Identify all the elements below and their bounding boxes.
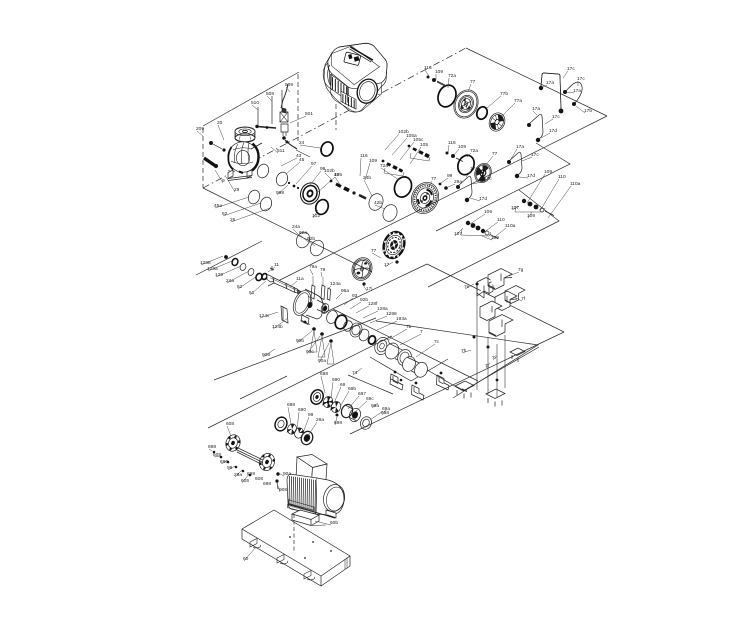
svg-text:62a: 62a	[299, 230, 307, 236]
svg-text:97: 97	[311, 161, 317, 167]
svg-text:77: 77	[371, 248, 377, 254]
svg-text:510: 510	[251, 100, 259, 106]
svg-text:509: 509	[285, 82, 293, 88]
svg-text:17d: 17d	[479, 196, 487, 202]
svg-text:72a: 72a	[448, 73, 456, 79]
svg-text:17a: 17a	[546, 80, 554, 86]
svg-text:7b: 7b	[406, 324, 412, 330]
svg-text:17c: 17c	[484, 176, 492, 182]
svg-text:42b: 42b	[374, 200, 382, 206]
svg-text:29a: 29a	[454, 179, 462, 185]
svg-text:17c: 17c	[567, 66, 575, 72]
svg-text:7: 7	[420, 329, 423, 335]
svg-text:7g: 7g	[518, 267, 524, 273]
svg-text:72a: 72a	[470, 148, 478, 154]
svg-text:11: 11	[274, 262, 279, 268]
svg-text:99: 99	[227, 465, 233, 471]
svg-text:698: 698	[263, 481, 271, 487]
svg-text:17c: 17c	[552, 114, 560, 120]
svg-text:11a: 11a	[296, 276, 304, 282]
svg-text:17b: 17b	[584, 108, 592, 114]
svg-text:90c: 90c	[306, 349, 314, 355]
svg-text:116: 116	[424, 65, 432, 71]
svg-text:109: 109	[369, 158, 377, 164]
svg-text:77b: 77b	[500, 91, 508, 97]
svg-text:109: 109	[435, 69, 443, 75]
svg-text:90a: 90a	[283, 471, 291, 477]
svg-text:908: 908	[262, 352, 270, 358]
svg-text:45: 45	[299, 157, 305, 163]
svg-text:24a: 24a	[226, 278, 234, 284]
svg-text:62: 62	[222, 211, 228, 217]
svg-text:109: 109	[544, 169, 552, 175]
svg-text:605: 605	[241, 478, 249, 484]
svg-text:109: 109	[527, 213, 535, 219]
svg-text:998: 998	[276, 190, 284, 196]
svg-text:24b: 24b	[363, 175, 371, 181]
svg-text:60b: 60b	[330, 520, 338, 526]
svg-text:17: 17	[384, 262, 390, 268]
svg-text:501: 501	[305, 111, 313, 117]
svg-text:90a: 90a	[318, 358, 326, 364]
svg-text:109: 109	[458, 144, 466, 150]
svg-text:110: 110	[497, 217, 505, 223]
svg-text:79a: 79a	[309, 264, 317, 270]
svg-text:110a: 110a	[570, 181, 581, 187]
svg-text:29: 29	[234, 187, 240, 193]
svg-text:17j: 17j	[366, 286, 372, 292]
svg-text:7c: 7c	[434, 339, 440, 345]
svg-text:93: 93	[352, 293, 358, 299]
svg-text:17c: 17c	[577, 76, 585, 82]
svg-text:124c: 124c	[259, 313, 270, 319]
svg-text:74: 74	[352, 370, 358, 376]
svg-text:62b: 62b	[307, 236, 315, 242]
svg-text:116: 116	[448, 140, 456, 146]
svg-text:107: 107	[511, 205, 519, 211]
svg-text:129a: 129a	[207, 266, 218, 272]
svg-text:69: 69	[340, 382, 346, 388]
svg-text:107: 107	[454, 231, 462, 237]
svg-text:99: 99	[447, 173, 453, 179]
svg-text:79: 79	[320, 267, 326, 273]
svg-text:26: 26	[230, 217, 236, 223]
svg-text:690: 690	[220, 459, 228, 465]
svg-text:608: 608	[213, 452, 221, 458]
svg-text:124b: 124b	[272, 324, 283, 330]
svg-text:60: 60	[243, 556, 249, 562]
svg-text:99: 99	[308, 412, 314, 418]
svg-text:24: 24	[299, 140, 305, 146]
svg-text:72a: 72a	[380, 163, 388, 169]
svg-text:124a: 124a	[330, 281, 341, 287]
svg-text:51: 51	[249, 290, 255, 296]
svg-text:17c: 17c	[531, 152, 539, 158]
svg-text:690: 690	[298, 407, 306, 413]
svg-text:698: 698	[208, 444, 216, 450]
svg-text:29a: 29a	[234, 472, 242, 478]
svg-text:96a: 96a	[341, 288, 349, 294]
svg-text:508: 508	[266, 91, 274, 97]
svg-text:7h: 7h	[461, 348, 467, 354]
svg-text:7i: 7i	[492, 355, 496, 361]
svg-text:69b: 69b	[348, 386, 356, 392]
svg-text:17a: 17a	[532, 106, 540, 112]
svg-text:77: 77	[431, 176, 437, 182]
svg-text:698: 698	[287, 402, 295, 408]
svg-text:9: 9	[222, 178, 225, 184]
svg-text:52: 52	[237, 284, 243, 290]
svg-text:105: 105	[334, 172, 342, 178]
svg-text:17a: 17a	[470, 166, 478, 172]
svg-text:20: 20	[217, 120, 223, 126]
svg-text:77a: 77a	[514, 98, 522, 104]
svg-text:7j: 7j	[485, 363, 489, 369]
svg-text:698: 698	[320, 371, 328, 377]
svg-text:17a: 17a	[516, 144, 524, 150]
svg-text:77: 77	[492, 151, 498, 157]
svg-text:102: 102	[312, 213, 320, 219]
svg-text:109: 109	[491, 235, 499, 241]
svg-text:45a: 45a	[214, 203, 222, 209]
svg-text:99a: 99a	[371, 403, 379, 409]
svg-text:511: 511	[277, 148, 285, 154]
svg-text:17d: 17d	[527, 173, 535, 179]
svg-text:7e: 7e	[464, 284, 470, 290]
svg-text:908: 908	[279, 487, 287, 493]
svg-text:608: 608	[226, 421, 234, 427]
svg-text:110a: 110a	[505, 223, 516, 229]
svg-text:116: 116	[360, 153, 368, 159]
svg-text:69c: 69c	[366, 396, 374, 402]
svg-text:24a: 24a	[292, 224, 300, 230]
svg-text:109: 109	[484, 209, 492, 215]
svg-text:209: 209	[196, 126, 204, 132]
svg-text:29a: 29a	[316, 417, 324, 423]
svg-text:17d: 17d	[549, 128, 557, 134]
svg-text:110: 110	[558, 174, 566, 180]
svg-text:1298: 1298	[200, 260, 211, 266]
svg-text:193a: 193a	[396, 316, 407, 322]
svg-text:129: 129	[215, 272, 223, 278]
svg-text:105: 105	[420, 142, 428, 148]
svg-text:698: 698	[381, 410, 389, 416]
svg-text:698: 698	[334, 420, 342, 426]
svg-text:17a: 17a	[573, 88, 581, 94]
svg-text:77: 77	[470, 79, 476, 85]
svg-text:7f: 7f	[521, 296, 526, 302]
svg-text:90b: 90b	[296, 338, 304, 344]
